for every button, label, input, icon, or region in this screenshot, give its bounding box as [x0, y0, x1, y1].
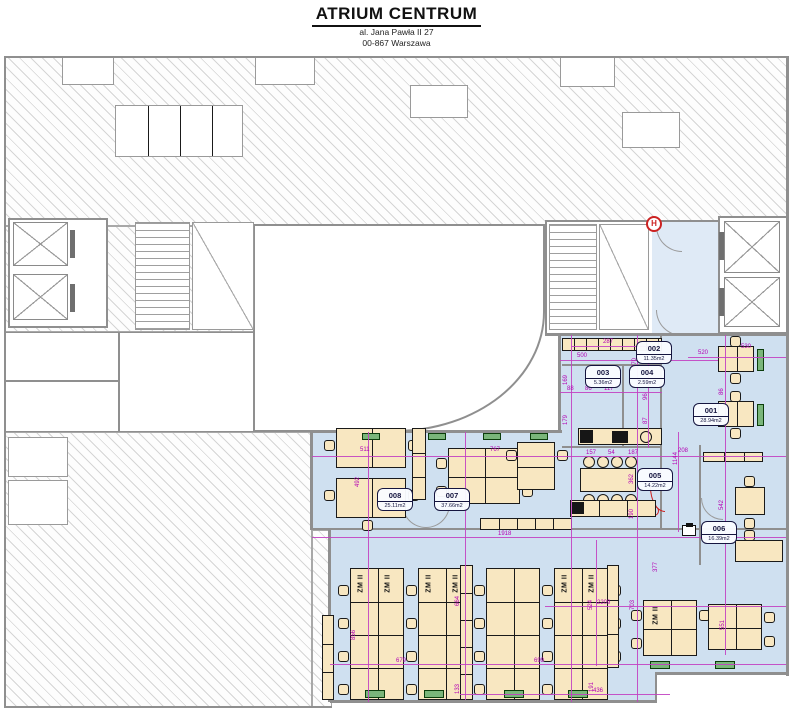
convector-icon [424, 690, 444, 698]
wall [558, 335, 561, 432]
dim-label: 511 [360, 447, 370, 453]
dim-label: 190 [629, 509, 635, 519]
convector-icon [757, 349, 764, 371]
cabinet-row [480, 518, 572, 530]
dim-line [637, 335, 638, 702]
room-number: 007 [435, 489, 469, 502]
dim-label: 2209 [597, 600, 610, 606]
top-room [622, 112, 680, 148]
dim-label: 436 [593, 688, 603, 694]
chair [764, 612, 775, 623]
dim-label: 856 [351, 630, 357, 640]
dim-label: 179 [563, 415, 569, 425]
chair [625, 456, 637, 468]
elevator-car-icon [724, 221, 780, 273]
elevator-door [719, 232, 724, 260]
chair [744, 518, 755, 529]
chair [324, 440, 335, 451]
dim-label: 208 [678, 448, 688, 454]
elevator-door [719, 288, 724, 316]
dim-label: 362 [629, 474, 635, 484]
dim-label: 287 [603, 339, 613, 345]
wall-outer-top [4, 56, 789, 58]
room-label-007: 007 37.66m2 [434, 488, 470, 511]
chair [406, 684, 417, 695]
room-area: 16.39m2 [702, 535, 736, 543]
left-room [8, 480, 68, 525]
building-notch [657, 674, 789, 710]
convector-icon [530, 433, 548, 440]
zm-desk-label: ZM II [653, 603, 660, 629]
floor-plan-page: ATRIUM CENTRUM al. Jana Pawła II 27 00-8… [0, 0, 793, 721]
kitchen-sink [580, 430, 593, 443]
dim-label: 88 [567, 386, 574, 392]
dim-label: 1918 [498, 531, 511, 537]
wall [655, 672, 657, 702]
dim-label: 767 [490, 447, 500, 453]
chair [324, 490, 335, 501]
zm-desk-label: ZM II [358, 571, 365, 597]
chair [744, 476, 755, 487]
chair [406, 618, 417, 629]
dim-label: 500 [577, 353, 587, 359]
dim-line [465, 432, 466, 700]
chair [338, 651, 349, 662]
cabinet-strip [322, 615, 334, 700]
dim-line [678, 432, 679, 532]
zm-desk-label: ZM II [562, 571, 569, 597]
printer-icon [682, 525, 696, 536]
zm-desk-label: ZM II [453, 571, 460, 597]
kitchen-appliance [612, 431, 628, 443]
zm-desk-label: ZM II [385, 571, 392, 597]
shaft-left [192, 222, 254, 330]
dim-label: 133 [455, 684, 461, 694]
convector-icon [483, 433, 501, 440]
room-area: 14.22m2 [638, 482, 672, 490]
dim-line [460, 694, 670, 695]
room-label-006: 006 16.39m2 [701, 521, 737, 544]
cabinet-row [703, 452, 763, 462]
room-label-005: 005 14.22m2 [637, 468, 673, 491]
room-number: 008 [378, 489, 412, 502]
convector-icon [362, 433, 380, 440]
dim-label: 157 [586, 450, 596, 456]
room-number: 005 [638, 469, 672, 482]
wall-outer-right [786, 56, 789, 676]
chair [730, 428, 741, 439]
stairs-right [549, 224, 597, 330]
zm-desk-label: ZM II [589, 571, 596, 597]
dim-label: 664 [455, 596, 461, 606]
conference-table [580, 468, 636, 492]
desk-cluster [486, 568, 540, 700]
room-label-003: 003 5.36m2 [585, 365, 621, 388]
dim-label: 86 [719, 388, 725, 395]
atrium-void [253, 224, 545, 432]
room-number: 004 [630, 366, 664, 379]
chair [542, 618, 553, 629]
dim-label: 54 [608, 450, 615, 456]
chair [730, 391, 741, 402]
dim-label: 703 [630, 600, 636, 610]
chair [338, 618, 349, 629]
wall-bottom [330, 700, 657, 703]
wall-outer-bottom-left [4, 706, 332, 708]
chair [474, 651, 485, 662]
wall [310, 432, 313, 530]
chair [542, 585, 553, 596]
dim-label: 679 [396, 658, 406, 664]
hydrant-icon: H [646, 216, 662, 232]
dim-label: 524 [588, 600, 594, 610]
room-label-004: 004 2.59m2 [629, 365, 665, 388]
dim-label: 377 [653, 562, 659, 572]
dim-line [725, 335, 726, 655]
dim-line [330, 664, 786, 665]
dim-label: 520 [698, 350, 708, 356]
wall [118, 332, 120, 432]
room-area: 2.59m2 [630, 379, 664, 387]
chair [436, 458, 447, 469]
wall-outer-left [4, 56, 6, 708]
stairs-left [135, 222, 190, 330]
cabinet-strip [607, 565, 619, 668]
convector-icon [428, 433, 446, 440]
chair [406, 585, 417, 596]
dim-line [368, 432, 369, 702]
convector-icon [715, 661, 735, 669]
room-area: 28.94m2 [694, 417, 728, 425]
desk-cluster [708, 604, 762, 650]
top-room [255, 57, 315, 85]
desk-cluster [643, 600, 697, 656]
chair [611, 456, 623, 468]
wall [4, 380, 120, 382]
chair [764, 636, 775, 647]
top-room [62, 57, 114, 85]
elevator-car-icon [13, 274, 68, 320]
shaft-right [599, 224, 649, 330]
dim-line [688, 357, 786, 358]
dim-label: 1144 [673, 452, 679, 465]
cabinet-strip [460, 565, 473, 700]
desk [735, 540, 783, 562]
elevator-door [70, 230, 75, 258]
wall-bottom-step [655, 672, 788, 675]
zm-desk-label: ZM II [426, 571, 433, 597]
wall [545, 333, 788, 336]
room-number: 002 [637, 342, 671, 355]
room-label-002: 002 11.35m2 [636, 341, 672, 364]
room-area: 11.35m2 [637, 355, 671, 363]
wc-block [115, 105, 243, 157]
chair [730, 336, 741, 347]
wall [699, 445, 701, 565]
dim-label: 169 [563, 375, 569, 385]
top-room [410, 85, 468, 118]
dim-label: 530 [741, 344, 751, 350]
room-number: 003 [586, 366, 620, 379]
dim-line [312, 456, 786, 457]
dim-label: 96 [643, 393, 649, 400]
counter-appliance [572, 502, 584, 514]
dim-line [545, 606, 786, 607]
chair [338, 684, 349, 695]
top-room [560, 57, 615, 87]
chair [474, 585, 485, 596]
room-area: 37.66m2 [435, 502, 469, 510]
convector-icon [650, 661, 670, 669]
room-area: 25.11m2 [378, 502, 412, 510]
floor-plan: H [0, 0, 793, 721]
desk-cluster [517, 442, 555, 490]
chair [583, 456, 595, 468]
dim-label: 87 [643, 417, 649, 424]
dim-label: 551 [720, 620, 726, 630]
room-number: 006 [702, 522, 736, 535]
cabinet-strip [412, 428, 426, 500]
room-area: 5.36m2 [586, 379, 620, 387]
dim-label: 187 [628, 450, 638, 456]
left-room [8, 437, 68, 477]
chair [597, 456, 609, 468]
dim-label: 699 [534, 658, 544, 664]
chair [744, 530, 755, 541]
desk [735, 487, 765, 515]
room-number: 001 [694, 404, 728, 417]
elevator-door [70, 284, 75, 312]
elevator-car-icon [724, 277, 780, 327]
wall [562, 446, 662, 448]
chair [474, 618, 485, 629]
chair [730, 373, 741, 384]
kitchen-burner [640, 431, 652, 443]
room-label-008: 008 25.11m2 [377, 488, 413, 511]
chair [338, 585, 349, 596]
elevator-car-icon [13, 222, 68, 266]
chair [406, 651, 417, 662]
dim-label: 492 [355, 477, 361, 487]
dim-label: 542 [719, 500, 725, 510]
room-label-001: 001 28.94m2 [693, 403, 729, 426]
convector-icon [757, 404, 764, 426]
